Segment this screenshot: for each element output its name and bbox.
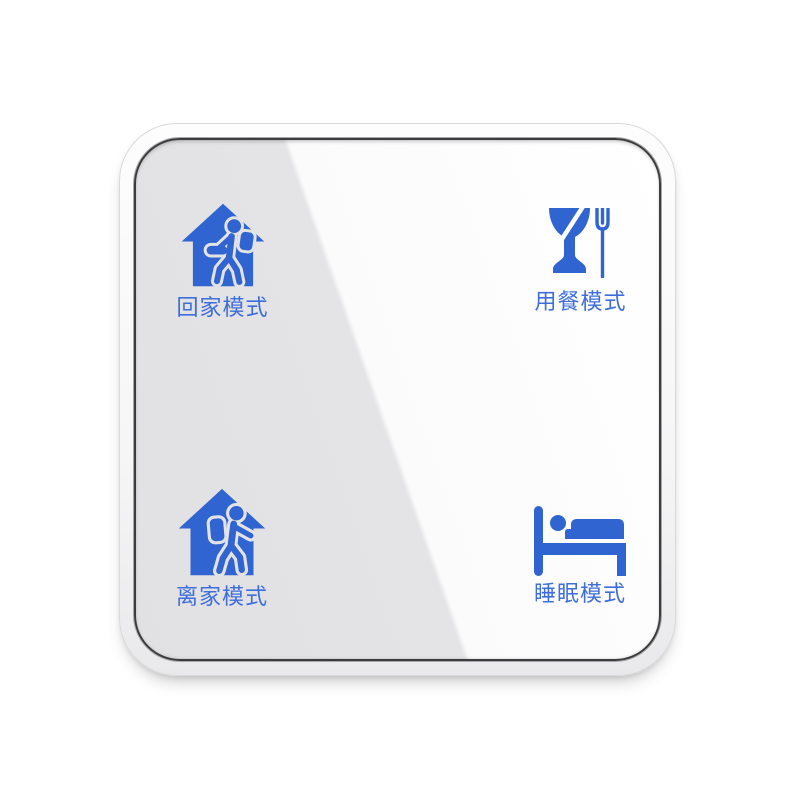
product-photo-stage: 回家模式 用餐模式 — [0, 0, 800, 800]
scene-label-sleep: 睡眠模式 — [534, 583, 626, 605]
scene-label-away: 离家模式 — [176, 586, 268, 608]
scene-button-home[interactable]: 回家模式 — [140, 201, 305, 319]
scene-button-sleep[interactable]: 睡眠模式 — [496, 506, 664, 605]
house-person-entering-icon — [180, 201, 266, 289]
glass-fork-icon — [548, 208, 614, 278]
scene-label-dining: 用餐模式 — [534, 291, 626, 313]
bed-sleep-icon — [534, 506, 626, 576]
scene-button-away[interactable]: 离家模式 — [138, 486, 306, 608]
house-person-leaving-icon — [177, 486, 267, 580]
scene-label-home: 回家模式 — [176, 297, 268, 319]
scene-button-dining[interactable]: 用餐模式 — [498, 208, 663, 313]
